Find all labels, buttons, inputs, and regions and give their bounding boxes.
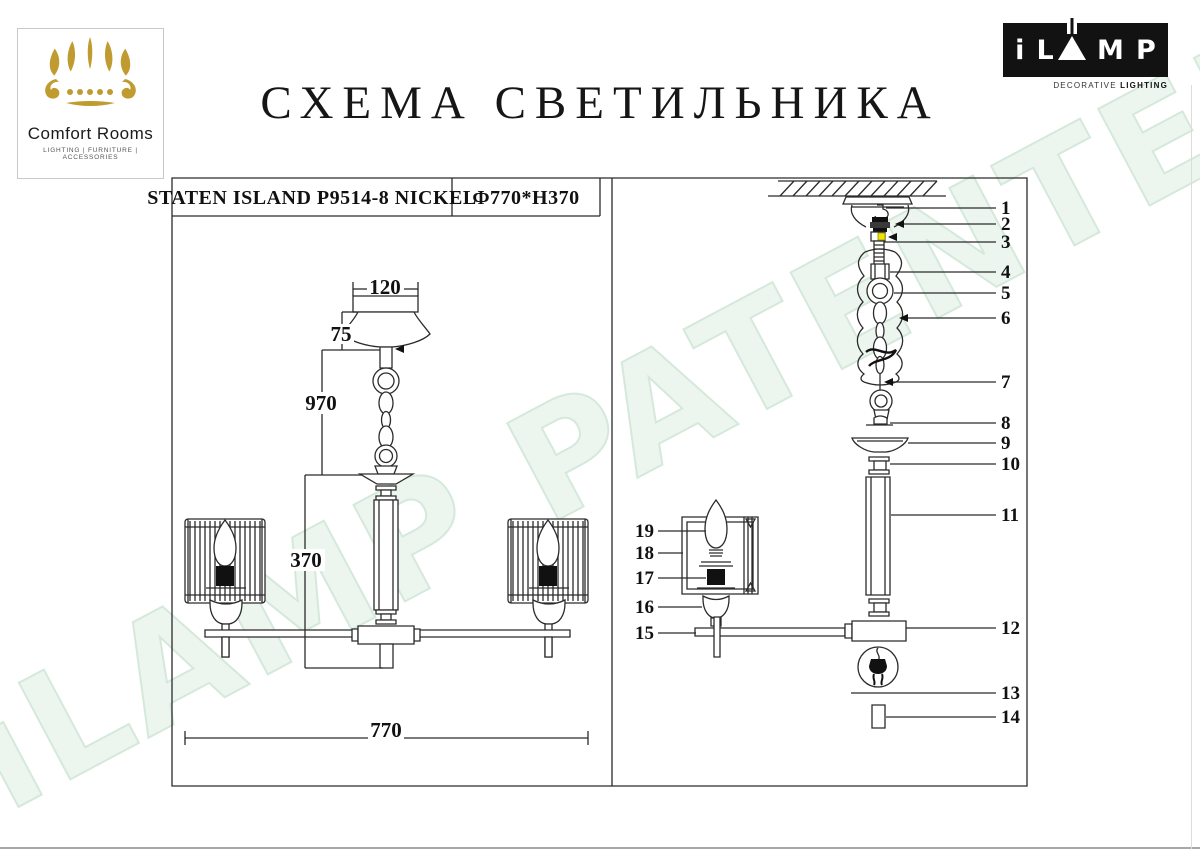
part-label-10: 10 xyxy=(1001,454,1020,475)
part-label-17: 17 xyxy=(635,568,655,589)
ilamp-letters-left: iL xyxy=(1003,37,1066,64)
part-label-16: 16 xyxy=(635,597,654,618)
part-label-9: 9 xyxy=(1001,433,1011,454)
comfort-rooms-name: Comfort Rooms xyxy=(18,124,163,144)
page-right-edge xyxy=(1191,85,1192,849)
part-label-13: 13 xyxy=(1001,683,1020,704)
dim-canopy-width: 120 xyxy=(369,275,401,299)
dim-body-height: 370 xyxy=(290,548,322,572)
ilamp-letters-right: MP xyxy=(1085,37,1168,64)
page-title: СХЕМА СВЕТИЛЬНИКА xyxy=(160,76,1040,130)
part-label-15: 15 xyxy=(635,623,654,644)
wire-detail xyxy=(858,647,898,687)
part-label-7: 7 xyxy=(1001,372,1011,393)
dim-canopy-height: 75 xyxy=(331,322,352,346)
model-label: STATEN ISLAND P9514-8 NICKEL xyxy=(147,187,476,209)
comfort-rooms-tagline: LIGHTING | FURNITURE | ACCESSORIES xyxy=(18,147,163,161)
ilamp-logo: iL MP xyxy=(1003,23,1168,77)
schematic-page: iLAMP PATENTED Comfort Rooms LIGHTING | … xyxy=(0,0,1200,849)
panel-frame xyxy=(172,178,1027,786)
part-label-3: 3 xyxy=(1001,232,1011,253)
part-label-4: 4 xyxy=(1001,262,1011,283)
part-label-6: 6 xyxy=(1001,308,1011,329)
ilamp-tagline: DECORATIVE LIGHTING xyxy=(1053,81,1168,90)
part-label-12: 12 xyxy=(1001,618,1020,639)
dim-chain-drop: 970 xyxy=(305,391,337,415)
part-labels-right: 1 2 3 4 5 6 7 8 9 10 11 12 13 14 xyxy=(1001,198,1021,728)
part-label-8: 8 xyxy=(1001,413,1011,434)
part-label-18: 18 xyxy=(635,543,654,564)
spec-header: STATEN ISLAND P9514-8 NICKEL Ф770*H370 xyxy=(147,187,579,209)
lamp-shade-icon xyxy=(1062,23,1083,77)
size-label: Ф770*H370 xyxy=(472,187,579,209)
comfort-rooms-logo: Comfort Rooms LIGHTING | FURNITURE | ACC… xyxy=(17,28,164,179)
dim-total-width: 770 xyxy=(370,718,402,742)
ceiling-hatch xyxy=(768,181,946,196)
part-label-5: 5 xyxy=(1001,283,1011,304)
exploded-view: 1 2 3 4 5 6 7 8 9 10 11 12 13 14 xyxy=(635,181,1021,728)
part-labels-left: 19 18 17 16 15 xyxy=(635,521,655,644)
part-label-19: 19 xyxy=(635,521,654,542)
part-label-11: 11 xyxy=(1001,505,1019,526)
part-label-14: 14 xyxy=(1001,707,1021,728)
assembled-view: 120 75 970 370 770 xyxy=(185,275,588,745)
comfort-rooms-crown-icon xyxy=(18,29,163,117)
